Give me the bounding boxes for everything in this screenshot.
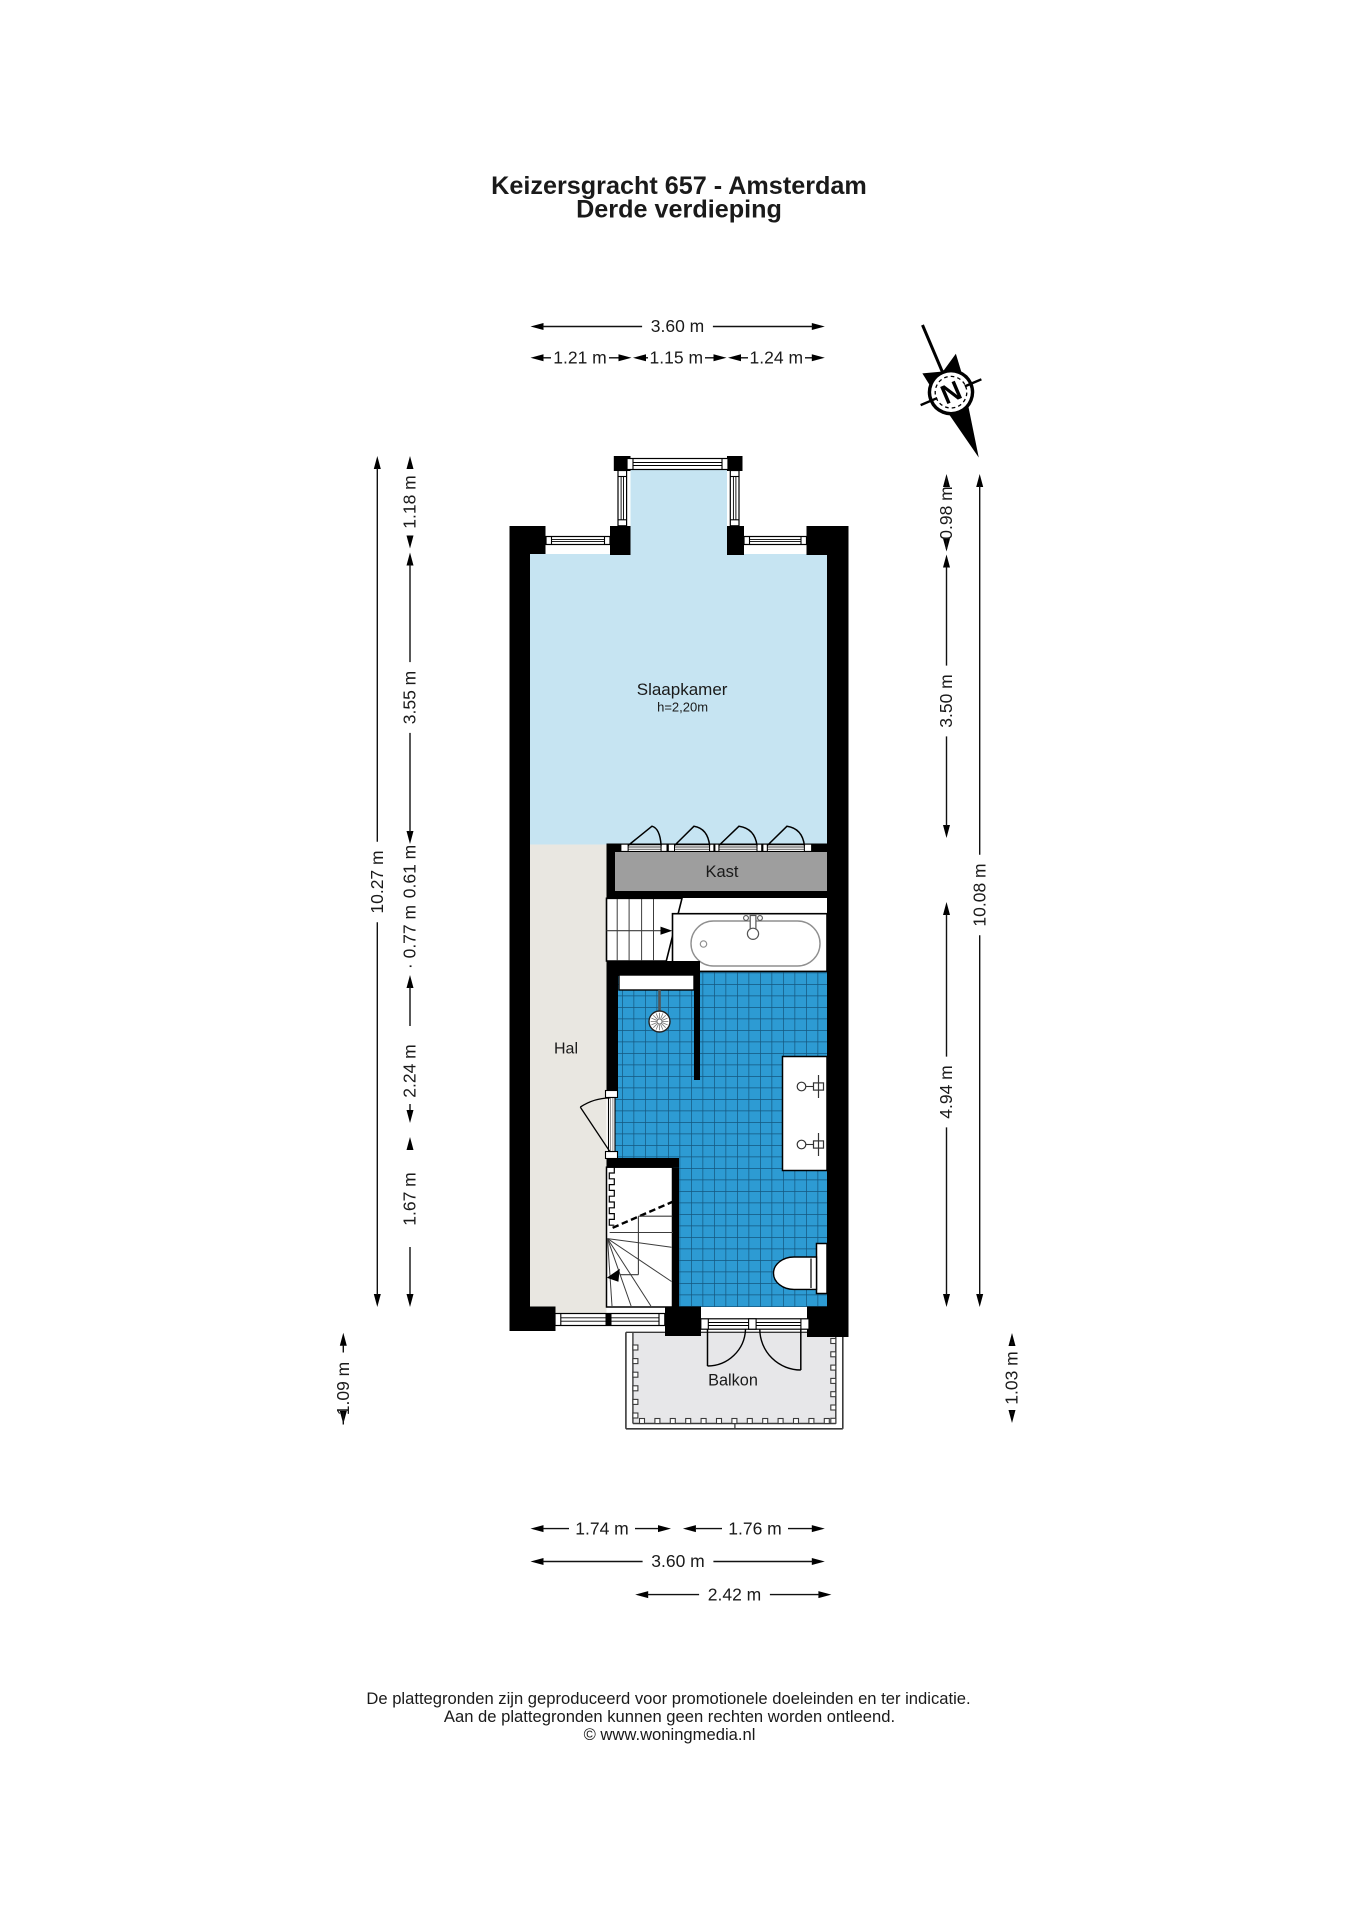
svg-text:0.61 m: 0.61 m — [400, 845, 420, 899]
svg-text:1.09 m: 1.09 m — [333, 1362, 353, 1416]
svg-text:1.67 m: 1.67 m — [400, 1172, 420, 1226]
svg-text:0.98 m: 0.98 m — [936, 486, 956, 540]
svg-text:2.24 m: 2.24 m — [400, 1044, 420, 1098]
svg-text:© www.woningmedia.nl: © www.woningmedia.nl — [584, 1725, 756, 1744]
svg-text:Balkon: Balkon — [708, 1371, 758, 1389]
svg-text:1.18 m: 1.18 m — [400, 475, 420, 529]
svg-text:h=2,20m: h=2,20m — [657, 700, 708, 715]
svg-text:Kast: Kast — [705, 863, 738, 881]
svg-text:1.03 m: 1.03 m — [1002, 1351, 1022, 1405]
svg-text:1.21 m: 1.21 m — [553, 348, 607, 368]
svg-text:Derde verdieping: Derde verdieping — [576, 196, 782, 224]
svg-text:Slaapkamer: Slaapkamer — [637, 680, 728, 699]
svg-text:Aan de plattegronden kunnen ge: Aan de plattegronden kunnen geen rechten… — [444, 1707, 895, 1726]
svg-text:2.42 m: 2.42 m — [708, 1584, 762, 1604]
svg-text:3.60 m: 3.60 m — [651, 1551, 705, 1571]
svg-text:1.74 m: 1.74 m — [575, 1518, 629, 1538]
svg-text:Hal: Hal — [554, 1041, 578, 1058]
svg-text:1.24 m: 1.24 m — [750, 348, 804, 368]
svg-text:4.94 m: 4.94 m — [936, 1065, 956, 1119]
svg-text:3.60 m: 3.60 m — [651, 316, 705, 336]
svg-text:3.50 m: 3.50 m — [936, 674, 956, 728]
svg-text:10.08 m: 10.08 m — [969, 863, 989, 926]
svg-text:3.55 m: 3.55 m — [400, 671, 420, 725]
svg-text:1.15 m: 1.15 m — [650, 348, 704, 368]
svg-text:De plattegronden zijn geproduc: De plattegronden zijn geproduceerd voor … — [366, 1689, 970, 1708]
svg-text:10.27 m: 10.27 m — [367, 850, 387, 913]
svg-text:· 0.77 m: · 0.77 m — [400, 905, 420, 969]
svg-text:1.76 m: 1.76 m — [728, 1518, 782, 1538]
